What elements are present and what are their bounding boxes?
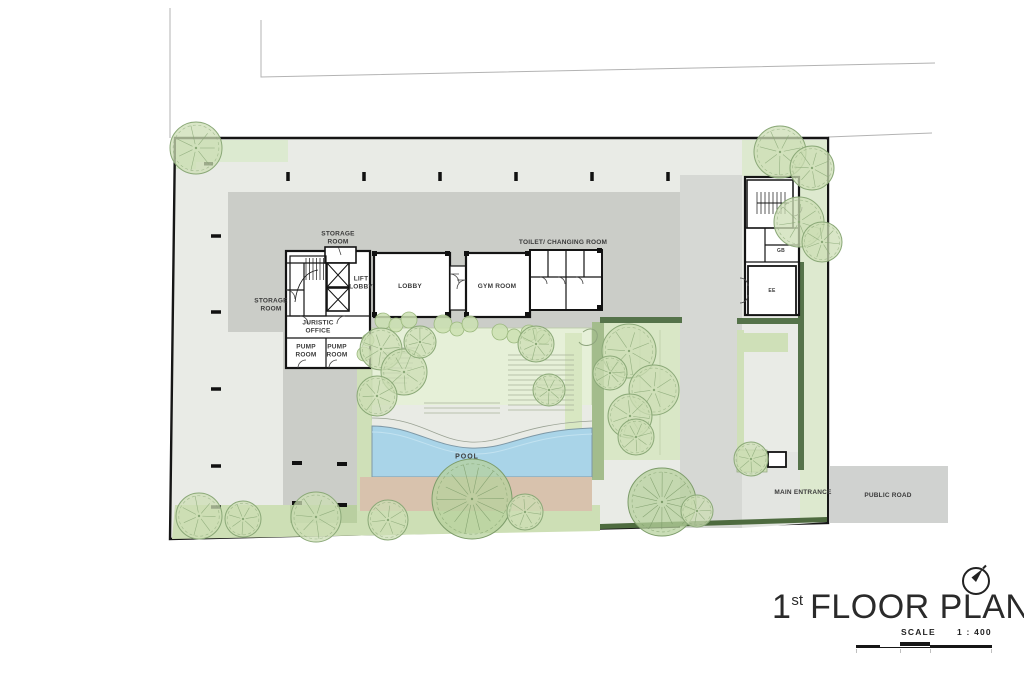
tree xyxy=(802,222,842,262)
bush xyxy=(375,313,391,329)
floor-plan-page: STORAGE ROOM STORAGE ROOM LIFT LOBBY LOB… xyxy=(0,0,1024,683)
label-storage-room-left: STORAGE ROOM xyxy=(251,298,291,315)
tree xyxy=(734,442,768,476)
tree xyxy=(681,495,713,527)
floor-plan-drawing xyxy=(0,0,1024,683)
column-tick xyxy=(362,172,366,181)
label-lift-lobby: LIFT LOBBY xyxy=(348,276,374,293)
tree xyxy=(170,122,222,174)
bush xyxy=(401,312,417,328)
column-tick xyxy=(438,172,442,181)
label-storage-room-top: STORAGE ROOM xyxy=(318,231,358,248)
title-number: 1 xyxy=(772,588,791,626)
courtyard-green-band xyxy=(737,330,744,460)
scale-label: SCALE xyxy=(901,627,936,637)
column-tick xyxy=(590,172,594,181)
link-corridor xyxy=(450,266,466,310)
storage-room-top xyxy=(325,247,356,263)
column-tick xyxy=(211,387,221,391)
tree xyxy=(507,494,543,530)
tree xyxy=(790,146,834,190)
column-tick xyxy=(514,172,518,181)
label-pump-room-2: PUMP ROOM xyxy=(321,344,353,361)
label-pump-room-1: PUMP ROOM xyxy=(290,344,322,361)
tree xyxy=(357,376,397,416)
label-pool: POOL xyxy=(455,452,479,461)
label-toilet-changing-room: TOILET/ CHANGING ROOM xyxy=(519,239,607,247)
tree xyxy=(176,493,222,539)
column-tick xyxy=(666,172,670,181)
scale-value: 1 : 400 xyxy=(957,627,992,637)
column-tick xyxy=(211,310,221,314)
toilet-block xyxy=(530,250,602,310)
column-tick xyxy=(286,172,290,181)
column-tick xyxy=(211,234,221,238)
context-boundary-lines xyxy=(170,8,935,138)
column-tick xyxy=(211,464,221,468)
label-public-road: PUBLIC ROAD xyxy=(864,492,911,500)
tree xyxy=(518,326,554,362)
label-lobby: LOBBY xyxy=(398,283,422,291)
tree-detailed xyxy=(432,459,512,539)
column-tick xyxy=(337,462,347,466)
label-ee: EE xyxy=(768,288,775,295)
title-ordinal: st xyxy=(791,592,803,609)
bush xyxy=(462,316,478,332)
label-gym-room: GYM ROOM xyxy=(478,283,516,291)
tree xyxy=(225,501,261,537)
courtyard-green-bed xyxy=(744,333,788,352)
bush xyxy=(492,324,508,340)
page-title: 1stFLOOR PLAN xyxy=(772,588,1020,627)
tree xyxy=(618,419,654,455)
title-block: 1stFLOOR PLAN xyxy=(772,588,1020,627)
column-tick xyxy=(292,461,302,465)
tree xyxy=(404,326,436,358)
driveway xyxy=(680,175,742,528)
title-text: FLOOR PLAN xyxy=(810,588,1024,626)
label-juristic-office: JURISTIC OFFICE xyxy=(294,320,342,337)
bush xyxy=(434,315,452,333)
tree xyxy=(533,374,565,406)
tree xyxy=(368,500,408,540)
scale-bar xyxy=(856,641,992,653)
lift-shafts xyxy=(327,263,349,311)
tree xyxy=(291,492,341,542)
walkway xyxy=(372,405,592,430)
label-main-entrance: MAIN ENTRANCE xyxy=(774,489,832,497)
tree xyxy=(593,356,627,390)
square-planter xyxy=(768,452,786,467)
label-gb: GB xyxy=(777,248,785,255)
